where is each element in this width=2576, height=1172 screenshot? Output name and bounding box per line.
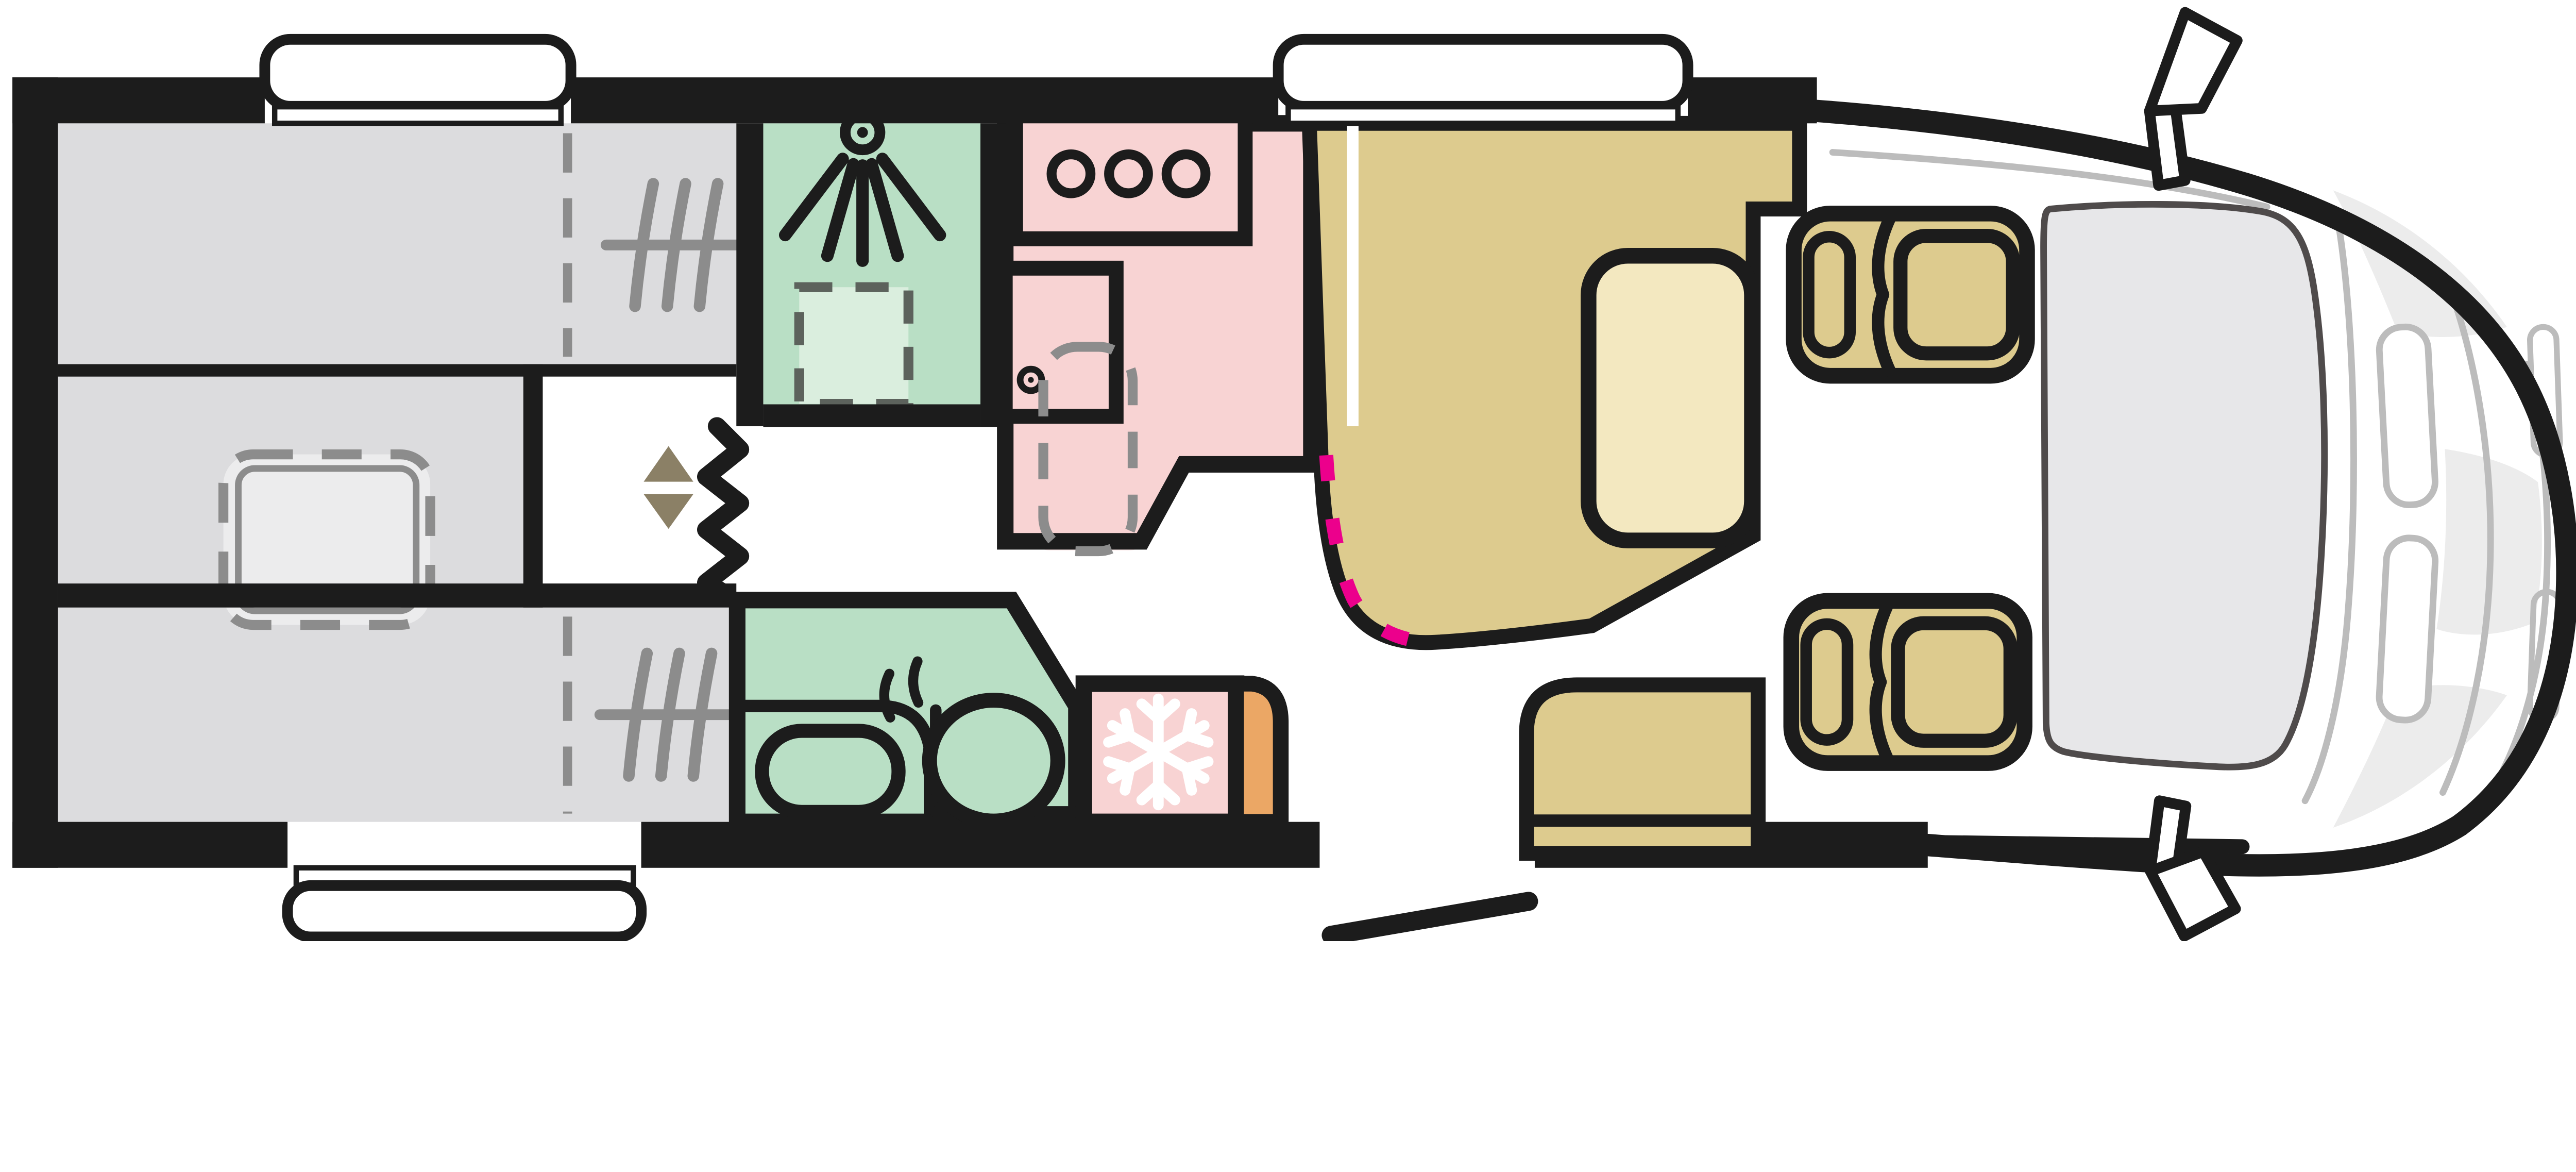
cab-seat-upper: [1794, 213, 2027, 376]
entry-bench: [1527, 685, 1758, 853]
window-dinette: [1278, 39, 1688, 123]
toilet: [929, 700, 1058, 821]
dinette-console-gap: [1347, 124, 1358, 426]
faucet-dot: [1028, 377, 1033, 382]
galley-units: [1084, 683, 1281, 822]
floor-plan-page: [0, 0, 2576, 941]
window-rear-lower: [287, 868, 641, 937]
headlight-lower: [2378, 537, 2436, 722]
wall-top-2: [571, 77, 1278, 123]
window-rear-upper: [265, 39, 571, 123]
wall-top-3: [1688, 77, 1817, 123]
floor-plan-canvas: [0, 0, 2576, 941]
windshield: [2044, 204, 2325, 767]
wall-center-step-right: [523, 364, 543, 608]
wall-shower-bottom: [763, 404, 980, 427]
bathroom: [737, 600, 1076, 822]
washbasin: [762, 731, 899, 812]
toilet-seat-arc-2: [913, 661, 919, 702]
headlight-upper: [2378, 326, 2436, 506]
shower-tray-dashed: [799, 287, 908, 404]
dinette-cushion: [1588, 256, 1752, 540]
wall-bed-shower-divider: [736, 123, 763, 426]
wall-shower-kitchen-divider: [980, 123, 1005, 427]
cab-seat-lower: [1791, 601, 2025, 763]
wall-bed-upper-bottom: [58, 364, 736, 377]
wall-bottom-2: [641, 822, 1320, 868]
wall-bed-lower-top: [58, 583, 736, 608]
wardrobe: [1236, 683, 1281, 822]
shower-room: [763, 115, 980, 404]
wall-left: [12, 77, 58, 868]
